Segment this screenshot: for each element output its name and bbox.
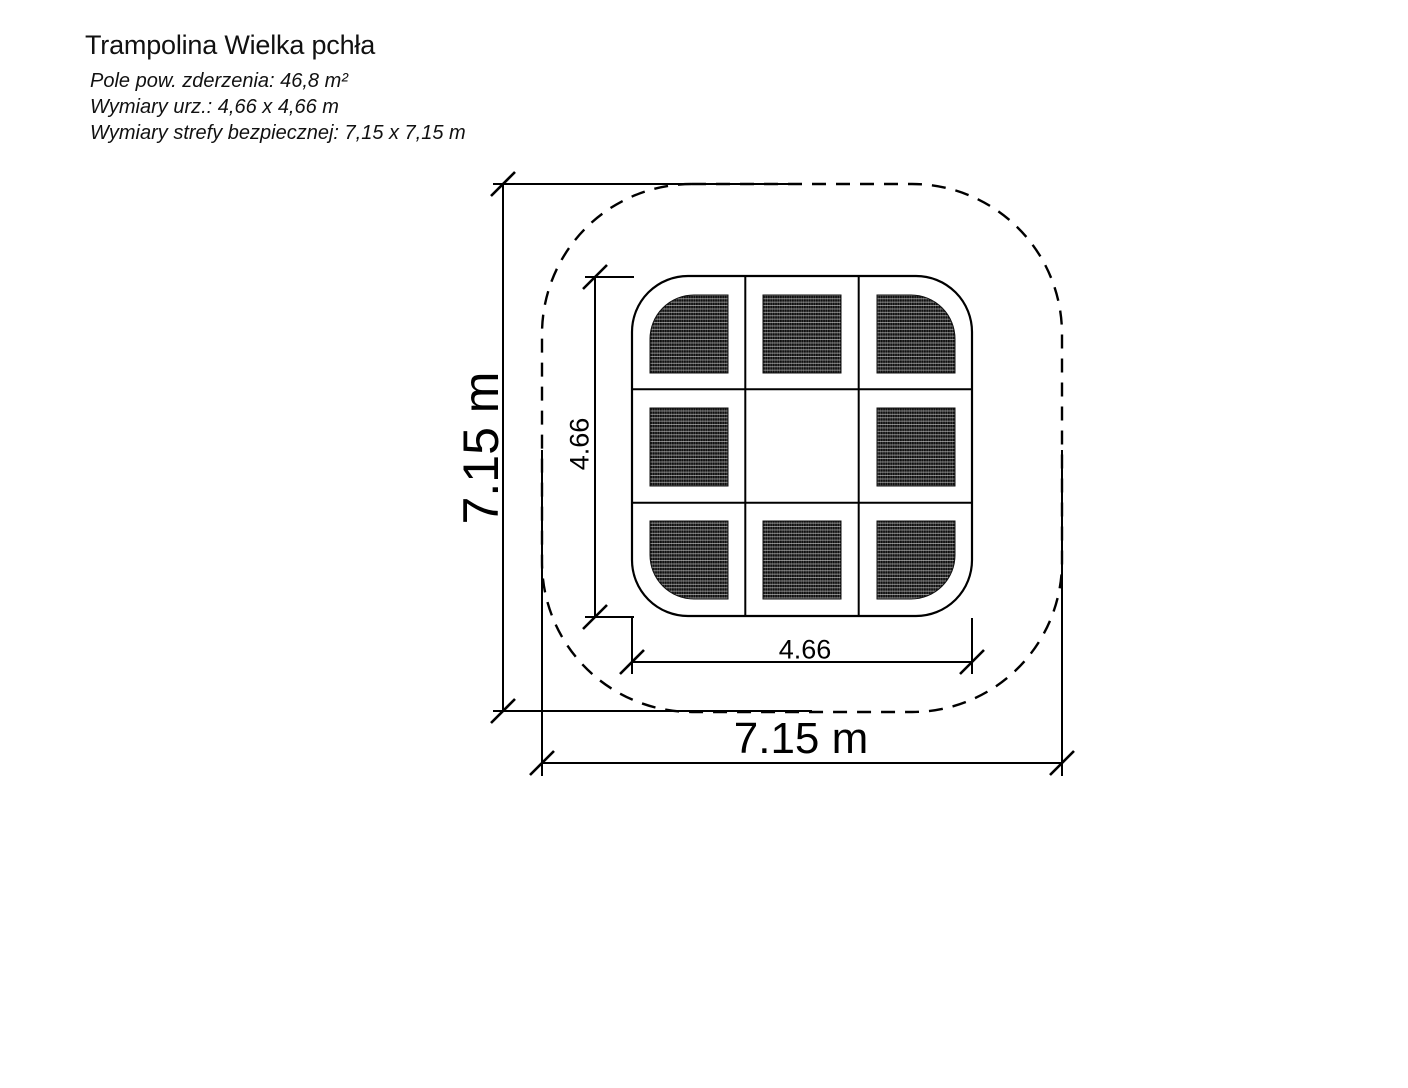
drawing-canvas: Trampolina Wielka pchła Pole pow. zderze… [0,0,1408,1088]
mat-pad-middle-left [650,408,728,486]
dim-label-device-height: 4.66 [565,418,596,471]
dim-label-safety-height: 7.15 m [452,372,510,525]
mat-pad-middle-right [877,408,955,486]
plan-drawing [0,0,1408,1088]
mat-pad-top-middle [763,295,841,373]
dim-label-device-width: 4.66 [779,635,832,666]
dim-label-safety-width: 7.15 m [734,714,869,764]
mat-pad-bottom-middle [763,521,841,599]
